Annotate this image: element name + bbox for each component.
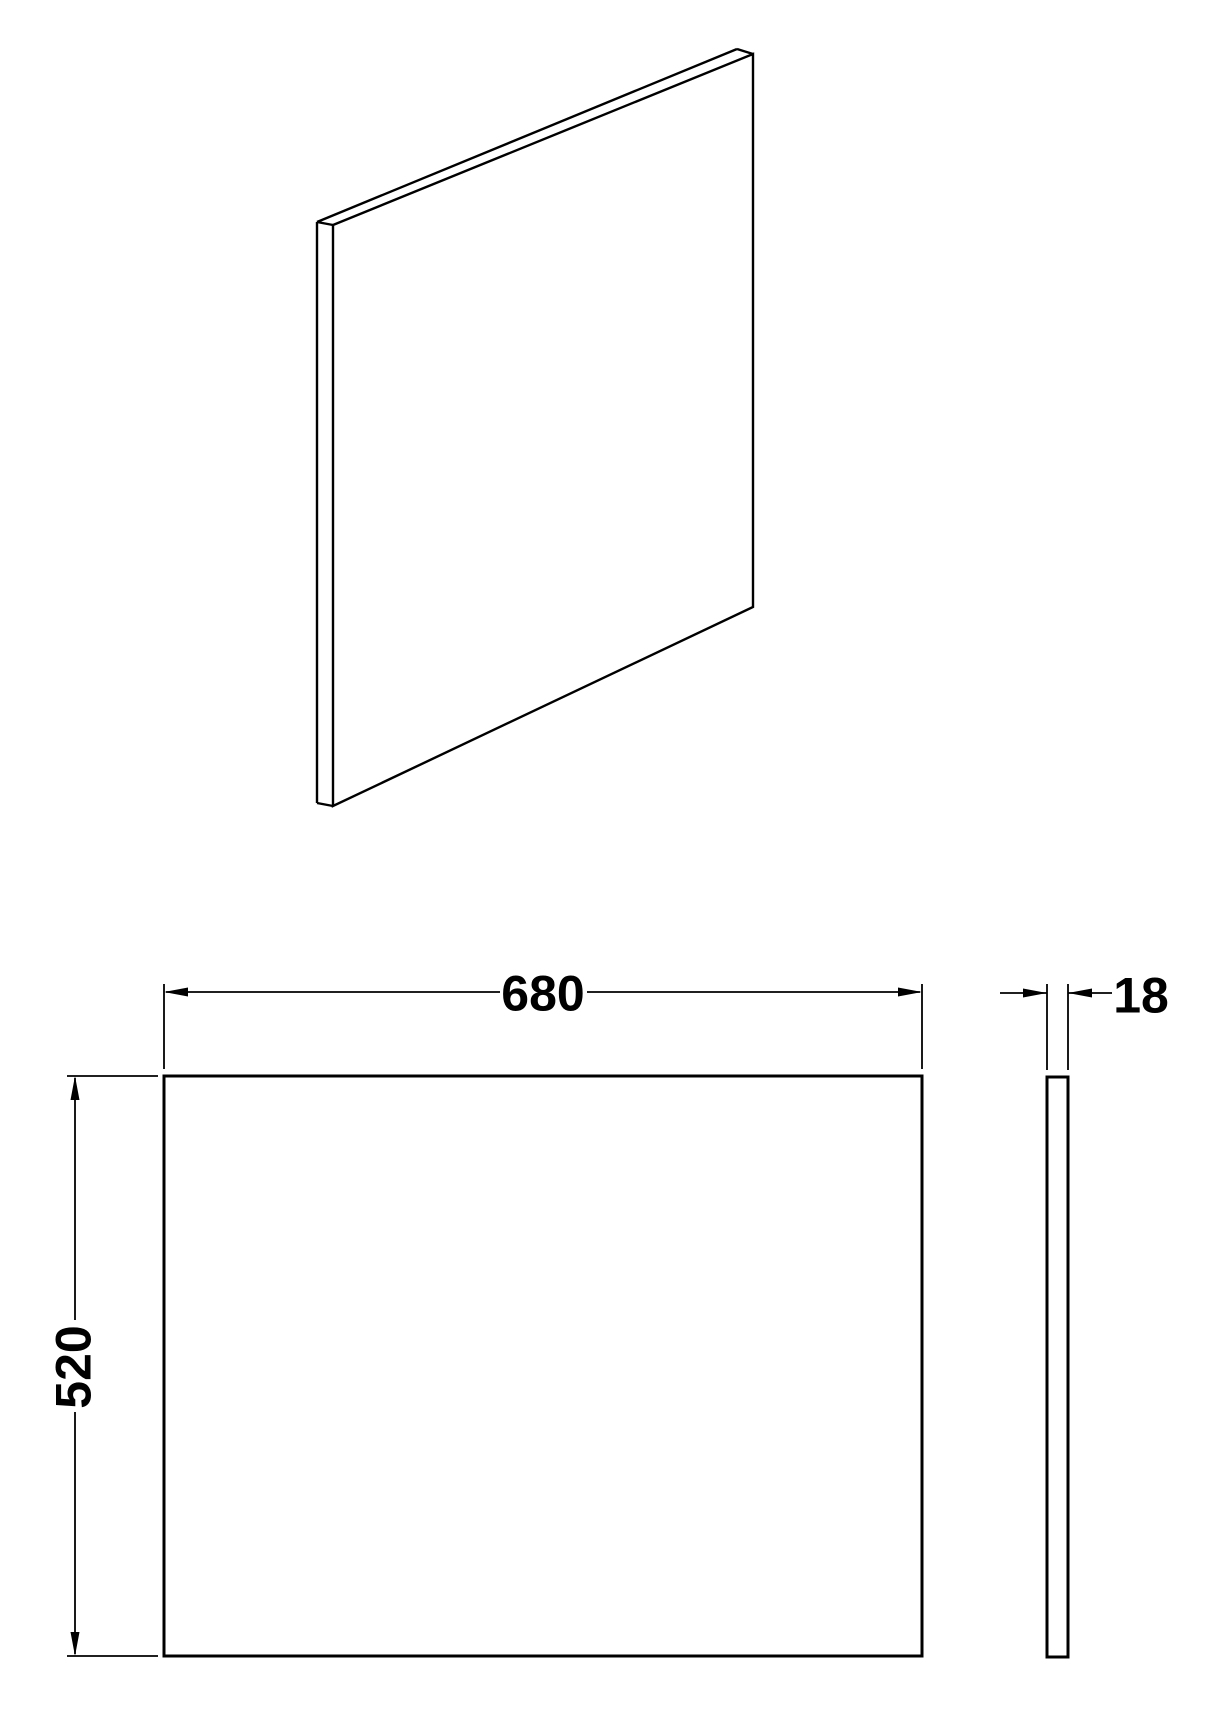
dimension-thickness: 18 (1000, 968, 1169, 1071)
thickness-dimension-label: 18 (1113, 968, 1169, 1024)
panel-bottom-left-cap-edge (317, 803, 333, 806)
thickness-arrow-right-icon (1023, 989, 1047, 998)
side-view-outline (1047, 1077, 1068, 1657)
panel-technical-drawing: 680 520 18 (0, 0, 1214, 1718)
front-view (164, 1076, 922, 1656)
side-view (1047, 1077, 1068, 1657)
height-arrow-up-icon (71, 1076, 80, 1100)
panel-front-face (333, 54, 753, 806)
dimension-width: 680 (164, 966, 922, 1070)
technical-drawing-canvas: 680 520 18 (0, 0, 1214, 1718)
panel-top-right-cap-edge (737, 49, 753, 54)
front-view-outline (164, 1076, 922, 1656)
width-dimension-label: 680 (501, 966, 584, 1022)
width-arrow-left-icon (164, 988, 188, 997)
height-arrow-down-icon (71, 1632, 80, 1656)
thickness-arrow-left-icon (1068, 989, 1092, 998)
height-dimension-label: 520 (46, 1325, 102, 1408)
dimension-height: 520 (46, 1076, 159, 1656)
panel-top-left-cap-edge (317, 222, 333, 225)
isometric-view (317, 49, 753, 806)
width-arrow-right-icon (898, 988, 922, 997)
